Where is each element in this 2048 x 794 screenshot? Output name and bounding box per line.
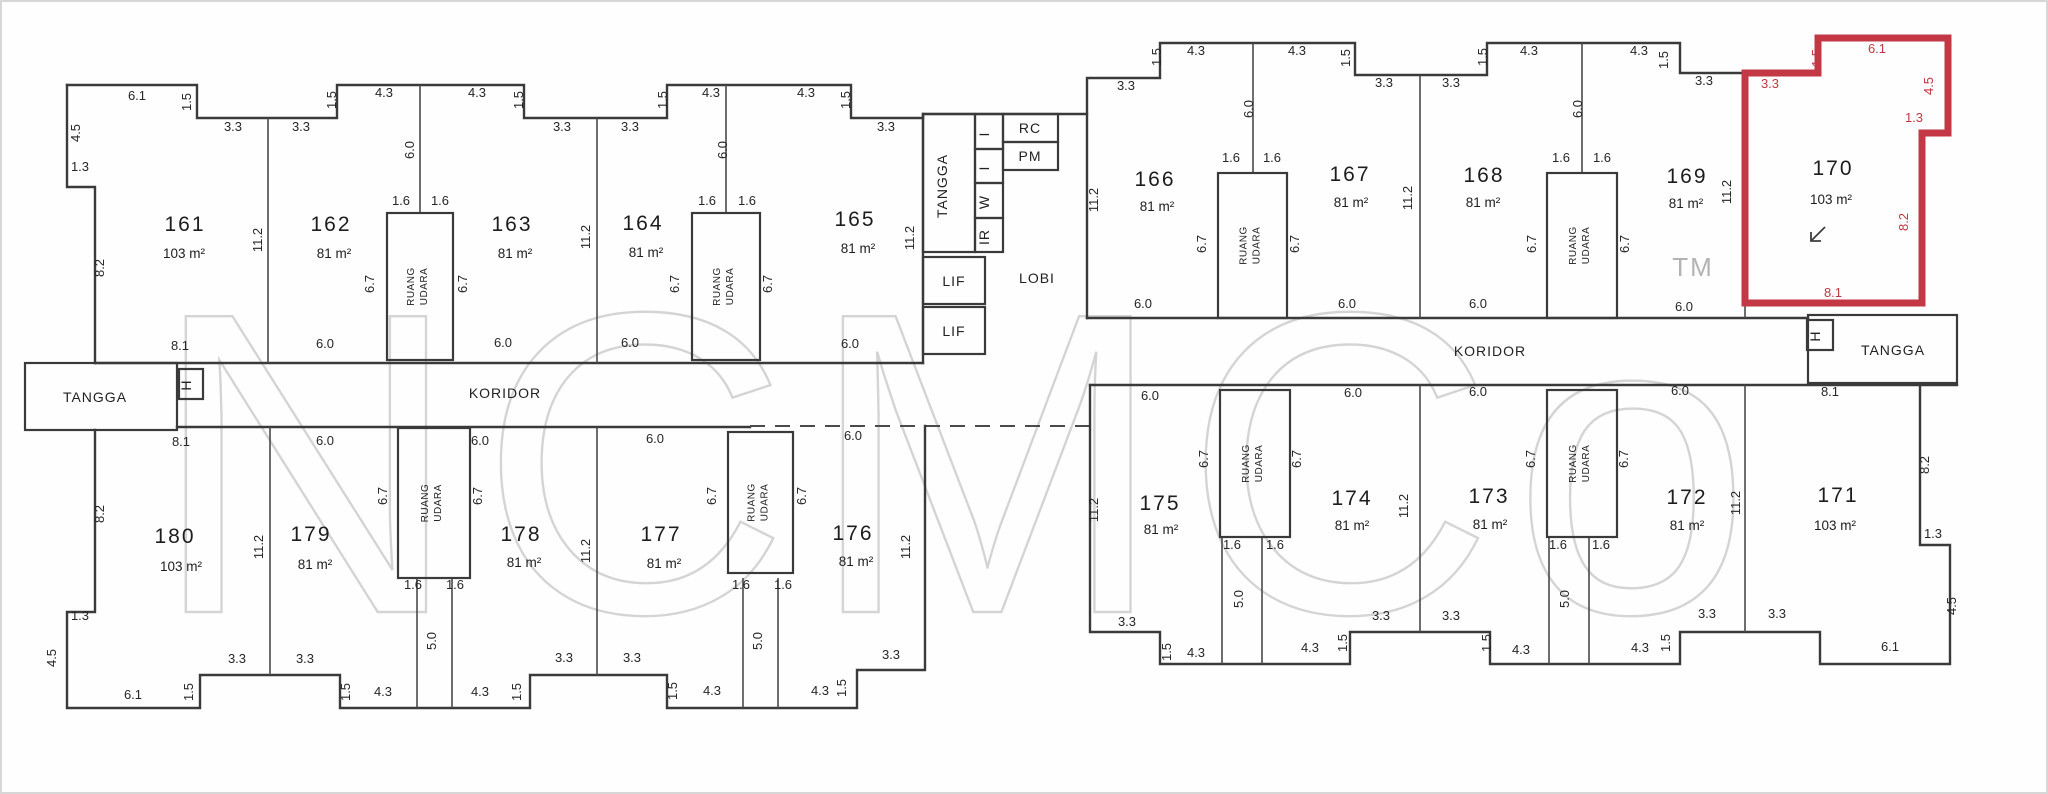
lobi-label: LOBI (1019, 270, 1055, 286)
air-shaft-label: UDARA (760, 484, 771, 522)
dim-label: 4.5 (44, 649, 59, 667)
room-number-170: 170 (1812, 157, 1853, 180)
dim-label: 1.5 (1479, 634, 1494, 652)
dim-label: 11.2 (578, 539, 593, 563)
dim-label: 1.5 (1658, 634, 1673, 652)
dim-label: 6.0 (1469, 384, 1487, 399)
dim-label: 6.0 (841, 336, 859, 351)
dim-label: 6.7 (667, 275, 682, 293)
dim-label: 11.2 (1728, 491, 1743, 515)
dim-label: 4.3 (1301, 640, 1319, 655)
dim-label: 6.0 (1134, 296, 1152, 311)
room-area-161: 103 m² (163, 246, 206, 261)
dim-label: 5.0 (424, 632, 439, 650)
svc-3-label: W (976, 195, 992, 209)
dim-label: 6.7 (1194, 235, 1209, 253)
room-area-175: 81 m² (1144, 522, 1179, 537)
dim-label: 1.3 (1924, 526, 1942, 541)
dim-label: 6.1 (128, 88, 146, 103)
dim-label: 1.5 (1656, 51, 1671, 69)
room-area-180: 103 m² (160, 559, 203, 574)
dim-label: 1.5 (1335, 634, 1350, 652)
dim-label: 1.5 (665, 682, 680, 700)
dim-label: 1.6 (1222, 150, 1240, 165)
dim-label: 1.5 (1149, 48, 1164, 66)
dim-label: 8.1 (171, 338, 189, 353)
dim-label: 8.1 (172, 434, 190, 449)
room-number-179: 179 (290, 523, 331, 546)
room-number-163: 163 (491, 213, 532, 236)
dim-label: 8.2 (92, 505, 107, 523)
room-area-163: 81 m² (498, 246, 533, 261)
dim-label: 4.3 (703, 683, 721, 698)
room-area-174: 81 m² (1335, 518, 1370, 533)
dim-label: 3.3 (882, 647, 900, 662)
air-shaft-label: RUANG (712, 267, 723, 306)
dim-label: 1.5 (834, 679, 849, 697)
dim-label: 5.0 (1557, 590, 1572, 608)
dim-label: 6.7 (455, 275, 470, 293)
lif-1-label: LIF (942, 273, 965, 289)
dim-label: 11.2 (902, 226, 917, 250)
air-shaft-label: RUANG (1568, 226, 1579, 265)
dim-label: 1.5 (838, 91, 853, 109)
hydrant-right-label: H (1807, 330, 1823, 341)
room-area-179: 81 m² (298, 557, 333, 572)
dim-label: 1.6 (1592, 537, 1610, 552)
room-number-169: 169 (1666, 165, 1707, 188)
dim-label: 6.0 (1671, 383, 1689, 398)
dim-label: 6.0 (844, 428, 862, 443)
air-shaft-label: UDARA (1581, 227, 1592, 265)
dim-label: 1.6 (738, 193, 756, 208)
dim-label: 1.3 (71, 608, 89, 623)
dim-label: 3.3 (1698, 606, 1716, 621)
room-area-168: 81 m² (1466, 195, 1501, 210)
dim-label: 3.3 (1768, 606, 1786, 621)
room-number-177: 177 (640, 523, 681, 546)
dim-label: 1.5 (1475, 48, 1490, 66)
dim-label: 11.2 (250, 228, 265, 252)
air-shaft-label: RUANG (1568, 444, 1579, 483)
room-number-162: 162 (310, 213, 351, 236)
air-shaft-label: RUANG (1241, 444, 1252, 483)
room-number-174: 174 (1331, 487, 1372, 510)
dim-label: 4.5 (1921, 77, 1936, 95)
room-area-164: 81 m² (629, 245, 664, 260)
room-area-171: 103 m² (1814, 518, 1857, 533)
dim-label: 6.7 (1523, 450, 1538, 468)
dim-label: 1.6 (446, 577, 464, 592)
dim-label: 1.6 (404, 577, 422, 592)
room-number-165: 165 (834, 208, 875, 231)
dim-label: 3.3 (623, 650, 641, 665)
dim-label: 6.0 (1344, 385, 1362, 400)
dim-label: 1.6 (1552, 150, 1570, 165)
dim-label: 3.3 (228, 651, 246, 666)
dim-label: 4.3 (1512, 642, 1530, 657)
dim-label: 3.3 (1117, 78, 1135, 93)
room-number-167: 167 (1329, 163, 1370, 186)
dim-label: 4.5 (1944, 597, 1959, 615)
dim-label: 6.0 (471, 433, 489, 448)
dim-label: 1.6 (732, 577, 750, 592)
dim-label: 6.0 (621, 335, 639, 350)
dim-label: 6.0 (494, 335, 512, 350)
hydrant-left-label: H (178, 379, 194, 390)
dim-label: 8.2 (1917, 456, 1932, 474)
dim-label: 4.3 (1630, 43, 1648, 58)
svc-2-label: I (976, 166, 992, 171)
dim-label: 11.2 (898, 535, 913, 559)
dim-label: 4.3 (374, 684, 392, 699)
dim-label: 1.5 (1338, 49, 1353, 67)
room-area-176: 81 m² (839, 554, 874, 569)
dim-label: 6.7 (470, 487, 485, 505)
dim-label: 3.3 (224, 119, 242, 134)
room-rc-label: RC (1019, 120, 1041, 136)
room-pm-label: PM (1019, 148, 1042, 164)
dim-label: 4.3 (811, 683, 829, 698)
dim-label: 1.6 (1223, 537, 1241, 552)
wall-top-outline (67, 43, 1745, 118)
room-number-172: 172 (1666, 486, 1707, 509)
dim-label: 6.7 (704, 487, 719, 505)
dim-label: 8.2 (1896, 213, 1911, 231)
dim-label: 1.5 (338, 683, 353, 701)
dim-label: 11.2 (578, 225, 593, 249)
dim-label: 6.7 (1616, 450, 1631, 468)
air-shaft-label: UDARA (725, 268, 736, 306)
air-shaft-label: UDARA (419, 268, 430, 306)
room-area-167: 81 m² (1334, 195, 1369, 210)
dim-label: 3.3 (1375, 75, 1393, 90)
tangga-left-label: TANGGA (63, 389, 127, 405)
koridor-right-label: KORIDOR (1454, 343, 1526, 359)
floor-plan-page: NCMCoTM RUANGUDARARUANGUDARARUANGUDARARU… (0, 0, 2048, 794)
room-area-162: 81 m² (317, 246, 352, 261)
dim-label: 8.1 (1821, 384, 1839, 399)
dim-label: 1.6 (431, 193, 449, 208)
room-area-170: 103 m² (1810, 192, 1853, 207)
dim-label: 4.3 (471, 684, 489, 699)
dim-label: 6.7 (1289, 450, 1304, 468)
floor-plan-svg: NCMCoTM RUANGUDARARUANGUDARARUANGUDARARU… (0, 0, 2048, 794)
room-number-175: 175 (1139, 492, 1180, 515)
dim-label: 5.0 (1231, 590, 1246, 608)
unit-170-entry-mark (1811, 227, 1825, 241)
room-number-166: 166 (1134, 168, 1175, 191)
dim-label: 8.1 (1824, 285, 1842, 300)
air-shaft-label: UDARA (1252, 227, 1263, 265)
dim-label: 1.5 (655, 91, 670, 109)
dim-label: 1.6 (1263, 150, 1281, 165)
room-number-178: 178 (500, 523, 541, 546)
room-area-166: 81 m² (1140, 199, 1175, 214)
room-area-178: 81 m² (507, 555, 542, 570)
dim-label: 8.2 (92, 259, 107, 277)
room-area-165: 81 m² (841, 241, 876, 256)
dim-label: 4.3 (702, 85, 720, 100)
dim-label: 1.3 (1905, 110, 1923, 125)
room-area-173: 81 m² (1473, 517, 1508, 532)
dim-label: 4.3 (797, 85, 815, 100)
dim-label: 1.6 (1266, 537, 1284, 552)
dim-label: 6.0 (1241, 100, 1256, 118)
dim-label: 6.7 (760, 275, 775, 293)
dim-label: 6.1 (1868, 41, 1886, 56)
dim-label: 6.0 (316, 433, 334, 448)
dim-label: 6.0 (646, 431, 664, 446)
watermark-tm: TM (1672, 252, 1714, 282)
dim-label: 11.2 (1719, 180, 1734, 204)
air-shaft-label: UDARA (1581, 445, 1592, 483)
dim-label: 3.3 (1372, 608, 1390, 623)
koridor-left-label: KORIDOR (469, 385, 541, 401)
dim-label: 3.3 (877, 119, 895, 134)
dim-label: 4.3 (468, 85, 486, 100)
dim-label: 1.5 (181, 683, 196, 701)
dim-label: 6.0 (1570, 100, 1585, 118)
dim-label: 6.0 (715, 141, 730, 159)
dim-label: 1.5 (509, 683, 524, 701)
room-area-172: 81 m² (1670, 518, 1705, 533)
air-shaft-label: RUANG (420, 484, 431, 523)
tangga-core-label: TANGGA (934, 154, 950, 218)
svc-1-box (975, 114, 1003, 149)
dim-label: 11.2 (251, 535, 266, 559)
dim-label: 3.3 (1442, 608, 1460, 623)
dim-label: 3.3 (292, 119, 310, 134)
room-number-164: 164 (622, 212, 663, 235)
svc-4-label: IR (976, 229, 992, 245)
dim-label: 11.2 (1396, 494, 1411, 518)
dim-label: 3.3 (621, 119, 639, 134)
dim-label: 1.3 (71, 159, 89, 174)
dim-label: 6.0 (1675, 299, 1693, 314)
dim-label: 6.0 (402, 141, 417, 159)
dim-label: 1.6 (774, 577, 792, 592)
dim-label: 6.7 (794, 487, 809, 505)
dim-label: 6.0 (1141, 388, 1159, 403)
dim-label: 3.3 (1761, 76, 1779, 91)
dim-label: 3.3 (1695, 73, 1713, 88)
dim-label: 11.2 (1086, 188, 1101, 212)
dim-label: 6.7 (1287, 235, 1302, 253)
room-number-171: 171 (1817, 484, 1858, 507)
dim-label: 6.0 (1469, 296, 1487, 311)
dim-label: 3.3 (1442, 75, 1460, 90)
room-number-161: 161 (164, 213, 205, 236)
dim-label: 1.6 (698, 193, 716, 208)
air-shaft-label: RUANG (747, 483, 758, 522)
dim-label: 6.7 (375, 487, 390, 505)
dim-label: 3.3 (296, 651, 314, 666)
dim-label: 4.5 (68, 124, 83, 142)
tangga-right-label: TANGGA (1861, 342, 1925, 358)
dim-label: 5.0 (750, 632, 765, 650)
dim-label: 6.1 (124, 687, 142, 702)
dim-label: 6.7 (1196, 450, 1211, 468)
dim-label: 11.2 (1400, 186, 1415, 210)
dim-label: 1.6 (1549, 537, 1567, 552)
dim-label: 4.3 (1187, 645, 1205, 660)
dim-label: 3.3 (555, 650, 573, 665)
dim-label: 6.0 (1338, 296, 1356, 311)
dim-label: 1.6 (1593, 150, 1611, 165)
air-shaft-label: RUANG (1239, 226, 1250, 265)
dim-label: 3.3 (553, 119, 571, 134)
svc-1-label: I (976, 132, 992, 137)
dim-label: 6.7 (1617, 235, 1632, 253)
dim-label: 1.5 (511, 91, 526, 109)
dim-label: 4.3 (1187, 43, 1205, 58)
room-area-169: 81 m² (1669, 196, 1704, 211)
lif-2-label: LIF (942, 323, 965, 339)
room-number-173: 173 (1468, 485, 1509, 508)
air-shaft-label: UDARA (433, 484, 444, 522)
dim-label: 4.3 (1520, 43, 1538, 58)
dim-label: 6.1 (1881, 639, 1899, 654)
dim-label: 4.3 (1288, 43, 1306, 58)
dim-label: 4.3 (375, 85, 393, 100)
dim-label: 1.6 (392, 193, 410, 208)
air-shaft-label: RUANG (406, 267, 417, 306)
air-shaft-label: UDARA (1254, 445, 1265, 483)
dim-label: 6.7 (1524, 235, 1539, 253)
dim-label: 3.3 (1118, 614, 1136, 629)
dim-label: 4.3 (1631, 640, 1649, 655)
dim-label: 1.5 (324, 91, 339, 109)
room-number-176: 176 (832, 522, 873, 545)
dim-label: 1.5 (179, 93, 194, 111)
room-area-177: 81 m² (647, 556, 682, 571)
room-number-168: 168 (1463, 164, 1504, 187)
dim-label: 1.5 (1159, 643, 1174, 661)
dim-label: 6.7 (362, 275, 377, 293)
dim-label: 11.2 (1086, 498, 1101, 522)
dim-label: 6.0 (316, 336, 334, 351)
room-number-180: 180 (154, 525, 195, 548)
